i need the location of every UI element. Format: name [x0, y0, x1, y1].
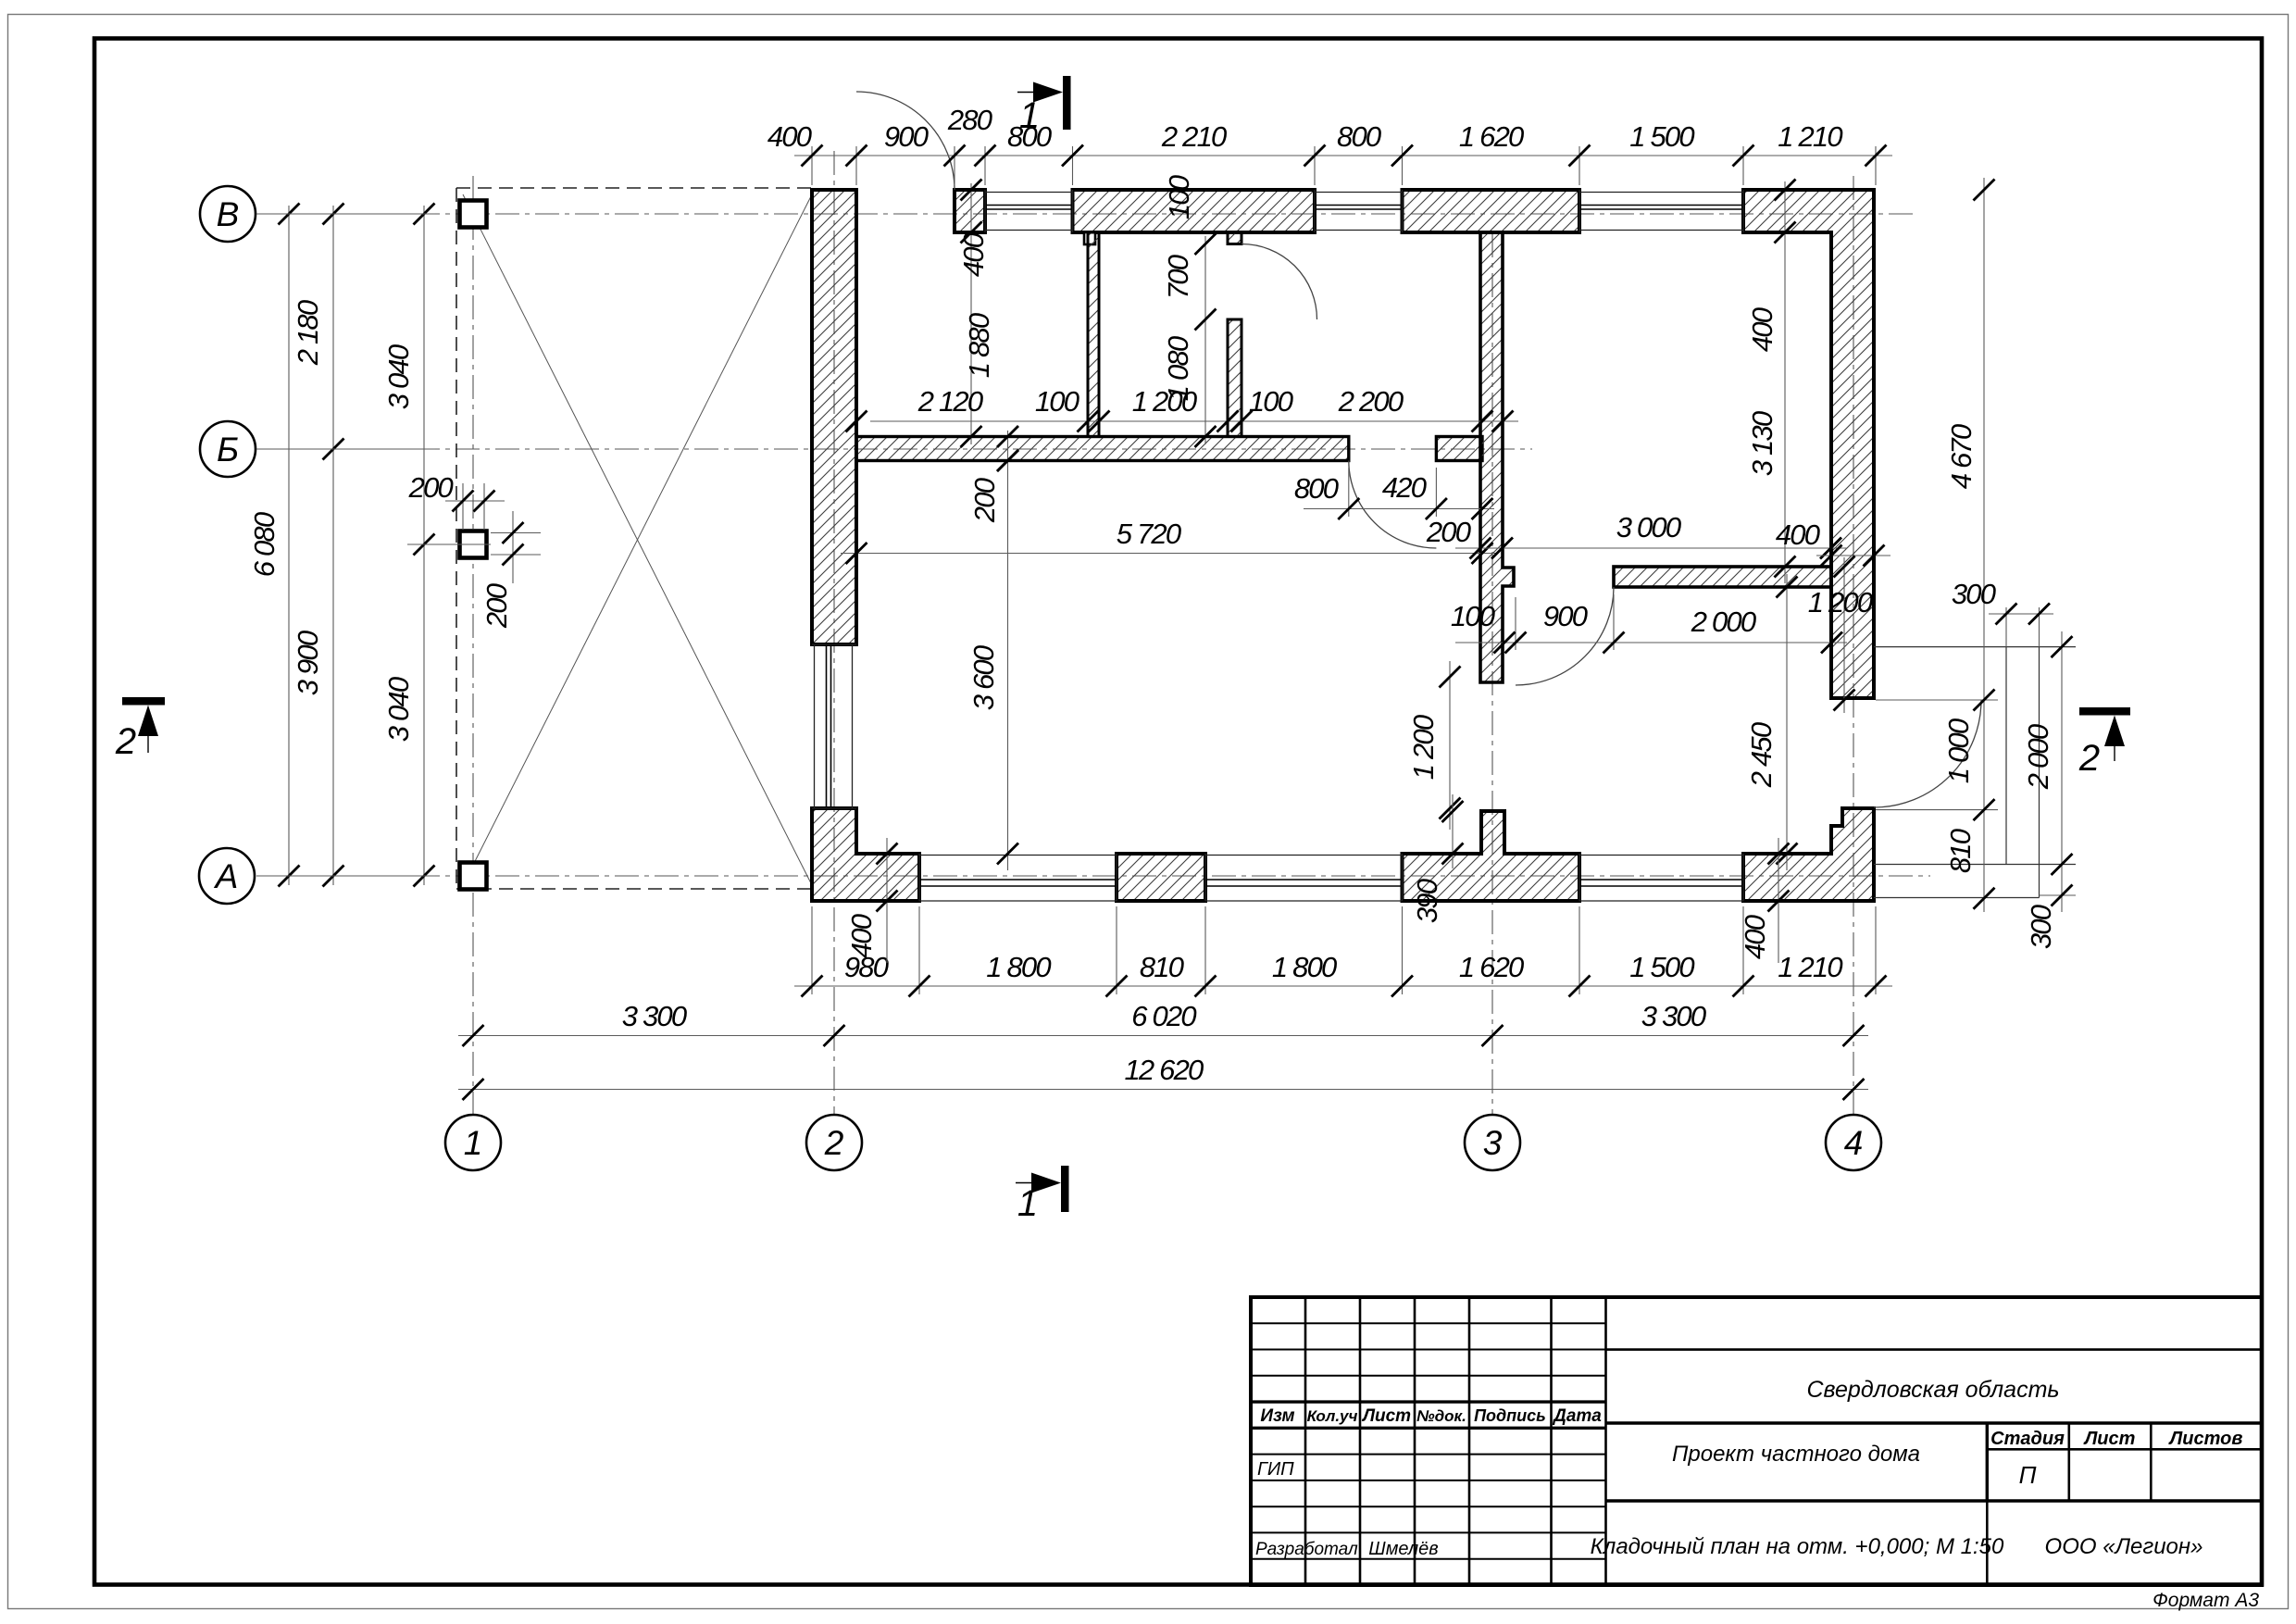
- svg-text:Стадия: Стадия: [1990, 1429, 2065, 1449]
- svg-text:ООО «Легион»: ООО «Легион»: [2045, 1534, 2203, 1559]
- svg-text:420: 420: [1382, 471, 1427, 504]
- svg-text:Листов: Листов: [2168, 1429, 2243, 1449]
- svg-text:2 000: 2 000: [1691, 606, 1756, 638]
- svg-text:Свердловская область: Свердловская область: [1806, 1377, 2059, 1403]
- svg-text:400: 400: [845, 914, 878, 958]
- svg-text:2 200: 2 200: [1338, 385, 1404, 418]
- svg-text:2: 2: [115, 721, 136, 762]
- svg-text:390: 390: [1411, 879, 1443, 923]
- svg-text:200: 200: [1426, 516, 1471, 548]
- svg-text:2: 2: [2078, 738, 2100, 779]
- svg-text:3 900: 3 900: [292, 631, 324, 695]
- svg-text:12 620: 12 620: [1124, 1054, 1204, 1086]
- svg-text:Подпись: Подпись: [1474, 1406, 1546, 1425]
- svg-text:Проект частного дома: Проект частного дома: [1672, 1442, 1920, 1467]
- svg-text:1 880: 1 880: [963, 313, 995, 378]
- svg-text:Б: Б: [217, 431, 239, 468]
- svg-text:ГИП: ГИП: [1257, 1459, 1294, 1480]
- svg-text:400: 400: [767, 120, 812, 153]
- svg-text:200: 200: [968, 478, 1001, 523]
- svg-text:810: 810: [1140, 951, 1184, 983]
- svg-text:1 500: 1 500: [1629, 120, 1694, 153]
- svg-text:200: 200: [408, 471, 454, 504]
- svg-text:2 120: 2 120: [917, 385, 983, 418]
- svg-text:П: П: [2019, 1461, 2037, 1489]
- svg-text:3 040: 3 040: [382, 677, 415, 742]
- svg-text:300: 300: [1952, 578, 1996, 610]
- svg-text:Изм: Изм: [1260, 1406, 1294, 1426]
- svg-text:3 040: 3 040: [382, 344, 415, 409]
- svg-text:3 130: 3 130: [1746, 411, 1778, 476]
- svg-text:3: 3: [1483, 1124, 1503, 1162]
- svg-text:6 080: 6 080: [248, 512, 281, 577]
- svg-text:4 670: 4 670: [1945, 424, 1978, 489]
- svg-text:100: 100: [1451, 600, 1495, 632]
- svg-text:3 000: 3 000: [1616, 511, 1681, 543]
- svg-text:1 800: 1 800: [986, 951, 1051, 983]
- svg-text:2 210: 2 210: [1161, 120, 1227, 153]
- svg-text:1 620: 1 620: [1459, 120, 1524, 153]
- svg-text:Лист: Лист: [1361, 1406, 1411, 1426]
- svg-text:3 300: 3 300: [1641, 1000, 1706, 1032]
- svg-text:280: 280: [947, 104, 992, 136]
- svg-text:В: В: [217, 195, 240, 233]
- svg-text:1 500: 1 500: [1629, 951, 1694, 983]
- svg-text:1 800: 1 800: [1272, 951, 1337, 983]
- svg-text:1: 1: [464, 1124, 483, 1162]
- svg-text:800: 800: [1007, 120, 1052, 153]
- svg-text:5 720: 5 720: [1117, 518, 1181, 550]
- svg-text:1 210: 1 210: [1778, 120, 1842, 153]
- svg-text:2 450: 2 450: [1745, 722, 1778, 788]
- svg-text:810: 810: [1944, 829, 1977, 873]
- svg-text:№док.: №док.: [1416, 1407, 1466, 1425]
- svg-text:Шмелёв: Шмелёв: [1368, 1539, 1438, 1559]
- svg-text:А: А: [214, 857, 239, 895]
- svg-text:900: 900: [884, 120, 929, 153]
- svg-text:400: 400: [1776, 518, 1820, 551]
- svg-text:2: 2: [824, 1124, 844, 1162]
- svg-text:1 210: 1 210: [1778, 951, 1842, 983]
- svg-text:3 300: 3 300: [622, 1000, 687, 1032]
- svg-text:Лист: Лист: [2083, 1429, 2136, 1449]
- svg-text:1 000: 1 000: [1942, 718, 1975, 783]
- svg-text:100: 100: [1035, 385, 1079, 418]
- svg-text:400: 400: [1746, 307, 1778, 352]
- svg-text:800: 800: [1337, 120, 1381, 153]
- svg-text:Формат А3: Формат А3: [2152, 1590, 2259, 1611]
- svg-text:1 200: 1 200: [1808, 586, 1873, 618]
- svg-text:Кол.уч: Кол.уч: [1307, 1407, 1358, 1425]
- svg-text:Дата: Дата: [1552, 1406, 1602, 1426]
- svg-text:100: 100: [1163, 175, 1195, 219]
- svg-text:300: 300: [2025, 905, 2057, 949]
- svg-text:800: 800: [1294, 472, 1339, 505]
- svg-text:200: 200: [480, 583, 513, 629]
- svg-text:2 180: 2 180: [292, 300, 324, 366]
- svg-text:3 600: 3 600: [967, 645, 1000, 710]
- svg-text:1 080: 1 080: [1162, 336, 1194, 401]
- svg-text:Кладочный план на отм. +0,000;: Кладочный план на отм. +0,000; М 1:50: [1591, 1534, 2004, 1559]
- svg-text:100: 100: [1249, 385, 1293, 418]
- svg-text:2 000: 2 000: [2022, 724, 2054, 790]
- svg-text:Разработал: Разработал: [1255, 1540, 1358, 1559]
- svg-text:6 020: 6 020: [1131, 1000, 1196, 1032]
- svg-text:700: 700: [1162, 255, 1194, 299]
- svg-text:400: 400: [957, 232, 990, 277]
- svg-text:400: 400: [1739, 915, 1771, 959]
- svg-text:1 620: 1 620: [1459, 951, 1524, 983]
- svg-text:1: 1: [1017, 1183, 1038, 1224]
- svg-text:1 200: 1 200: [1407, 715, 1440, 780]
- svg-text:900: 900: [1543, 600, 1588, 632]
- svg-text:4: 4: [1844, 1124, 1864, 1162]
